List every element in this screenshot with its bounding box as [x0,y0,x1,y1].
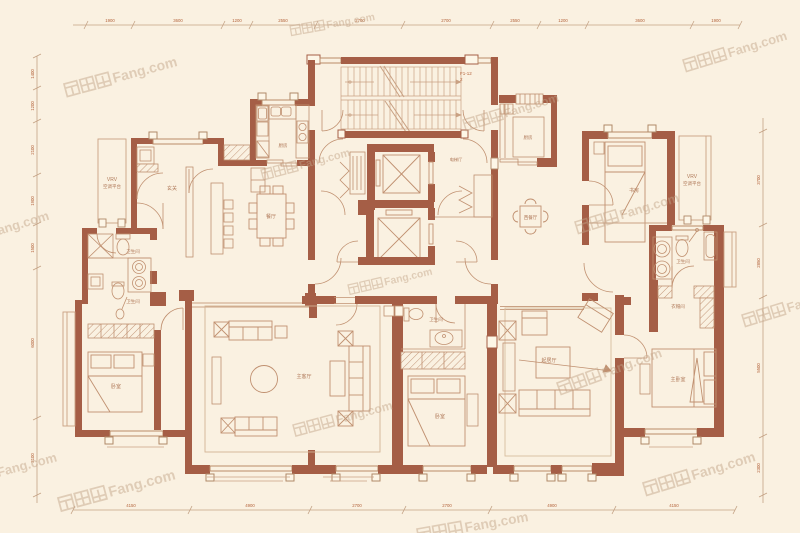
svg-text:西餐厅: 西餐厅 [524,214,538,221]
svg-text:4900: 4900 [547,503,557,508]
svg-text:1900: 1900 [711,18,721,23]
svg-text:VRV: VRV [107,177,118,183]
svg-text:3600: 3600 [173,18,183,23]
svg-text:1200: 1200 [558,18,568,23]
svg-text:2700: 2700 [441,18,451,23]
svg-text:卫生间: 卫生间 [126,298,140,305]
svg-text:主卧室: 主卧室 [670,376,685,383]
svg-text:卫生间: 卫生间 [429,316,443,323]
svg-text:餐厅: 餐厅 [266,213,276,220]
svg-text:卧室: 卧室 [111,383,121,390]
svg-text:1900: 1900 [105,18,115,23]
svg-text:1400: 1400 [30,69,35,79]
svg-text:4150: 4150 [126,503,136,508]
svg-text:6000: 6000 [30,338,35,348]
svg-text:2100: 2100 [30,145,35,155]
svg-text:F1-12: F1-12 [460,71,472,76]
svg-text:3600: 3600 [635,18,645,23]
svg-text:空调平台: 空调平台 [683,180,701,187]
svg-text:卧室: 卧室 [435,413,445,420]
svg-text:2550: 2550 [510,18,520,23]
svg-text:1900: 1900 [30,196,35,206]
svg-text:2300: 2300 [756,463,761,473]
svg-text:4900: 4900 [245,503,255,508]
svg-text:电梯厅: 电梯厅 [450,156,463,163]
svg-text:主客厅: 主客厅 [296,373,311,380]
svg-text:3700: 3700 [756,175,761,185]
svg-text:2700: 2700 [442,503,452,508]
svg-text:1500: 1500 [30,243,35,253]
svg-text:5500: 5500 [756,363,761,373]
svg-text:1200: 1200 [232,18,242,23]
svg-text:玄关: 玄关 [167,185,177,192]
svg-text:厨房: 厨房 [279,142,288,149]
svg-text:衣帽间: 衣帽间 [671,303,685,310]
svg-text:1200: 1200 [30,101,35,111]
svg-text:空调平台: 空调平台 [103,183,121,190]
svg-text:2850: 2850 [756,258,761,268]
svg-text:2550: 2550 [278,18,288,23]
svg-text:VRV: VRV [687,174,698,180]
svg-text:卫生间: 卫生间 [676,258,690,265]
svg-text:卫生间: 卫生间 [126,248,140,255]
svg-text:4150: 4150 [669,503,679,508]
svg-text:书房: 书房 [629,187,639,194]
svg-text:厨房: 厨房 [524,134,533,141]
svg-text:2700: 2700 [352,503,362,508]
